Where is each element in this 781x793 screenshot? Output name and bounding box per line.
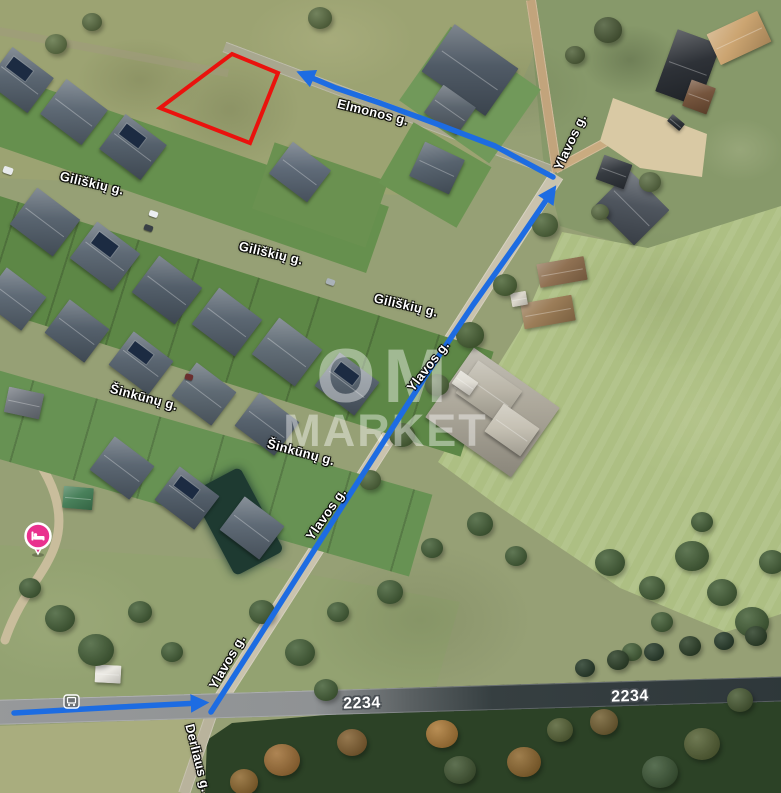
- bus-stop-icon[interactable]: [63, 694, 80, 714]
- parked-car: [184, 373, 193, 381]
- cars-layer: [0, 0, 781, 793]
- parked-car: [143, 224, 153, 233]
- parked-car: [2, 165, 14, 175]
- parked-car: [325, 278, 335, 287]
- satellite-map[interactable]: OM MARKET Giliškių g.Giliškių g.Giliškių…: [0, 0, 781, 793]
- lodging-marker[interactable]: [21, 521, 55, 566]
- parked-car: [148, 210, 158, 219]
